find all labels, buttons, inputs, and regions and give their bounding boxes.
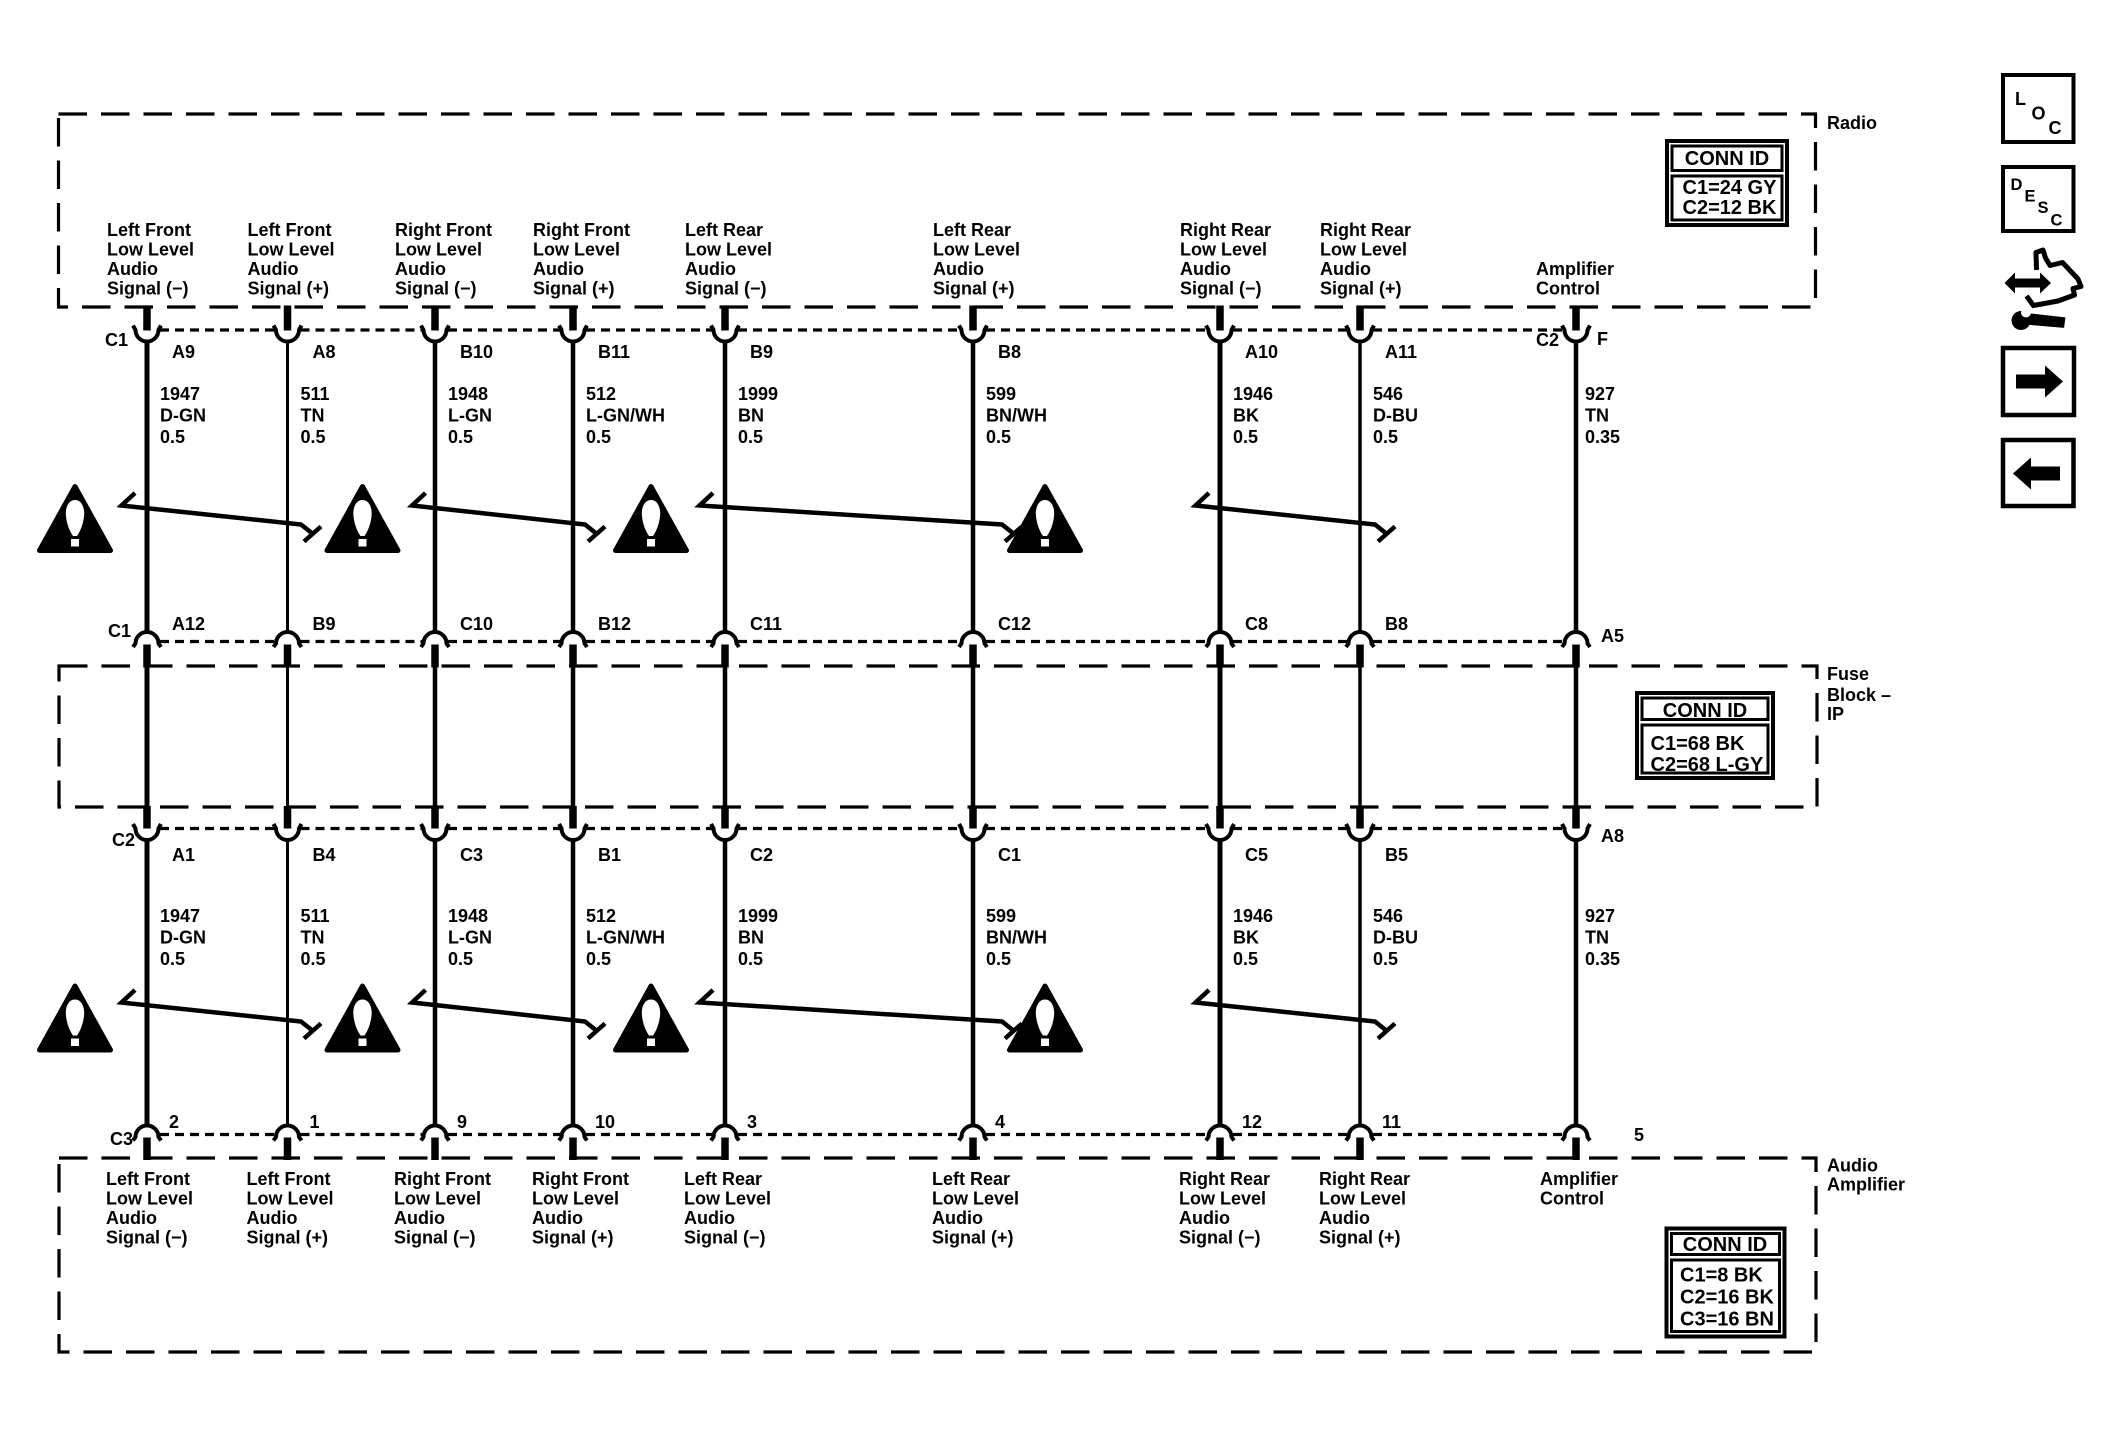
- svg-text:B4: B4: [313, 845, 336, 865]
- svg-text:3: 3: [747, 1112, 757, 1132]
- svg-text:E: E: [2025, 188, 2036, 206]
- svg-text:C1: C1: [105, 330, 128, 350]
- svg-text:C2: C2: [112, 830, 135, 850]
- svg-text:CONN ID: CONN ID: [1683, 1234, 1767, 1256]
- svg-text:C2: C2: [750, 845, 773, 865]
- svg-text:B8: B8: [998, 342, 1021, 362]
- svg-text:Left RearLow LevelAudioSignal: Left RearLow LevelAudioSignal (+): [933, 220, 1020, 299]
- svg-text:C2: C2: [1536, 330, 1559, 350]
- svg-text:CONN ID: CONN ID: [1663, 700, 1747, 722]
- svg-text:Radio: Radio: [1827, 113, 1877, 133]
- svg-text:4: 4: [995, 1112, 1005, 1132]
- svg-text:A8: A8: [313, 342, 336, 362]
- svg-text:C1=24 GY: C1=24 GY: [1683, 177, 1778, 199]
- svg-text:B9: B9: [313, 614, 336, 634]
- svg-text:Right RearLow LevelAudioSignal: Right RearLow LevelAudioSignal (+): [1319, 1169, 1410, 1248]
- svg-text:CONN ID: CONN ID: [1685, 148, 1769, 170]
- svg-text:B8: B8: [1385, 614, 1408, 634]
- svg-text:C: C: [2051, 212, 2063, 230]
- svg-text:C1: C1: [108, 621, 131, 641]
- svg-text:C10: C10: [460, 614, 493, 634]
- svg-text:C12: C12: [998, 614, 1031, 634]
- svg-text:Right RearLow LevelAudioSignal: Right RearLow LevelAudioSignal (−): [1179, 1169, 1270, 1248]
- svg-text:C2=12 BK: C2=12 BK: [1683, 197, 1777, 219]
- svg-text:Left FrontLow LevelAudioSignal: Left FrontLow LevelAudioSignal (+): [248, 220, 335, 299]
- svg-text:Left RearLow LevelAudioSignal: Left RearLow LevelAudioSignal (−): [685, 220, 772, 299]
- svg-text:5: 5: [1634, 1125, 1644, 1145]
- svg-text:Left FrontLow LevelAudioSignal: Left FrontLow LevelAudioSignal (−): [107, 220, 194, 299]
- svg-text:2: 2: [169, 1112, 179, 1132]
- svg-text:9: 9: [457, 1112, 467, 1132]
- svg-text:A11: A11: [1385, 342, 1417, 362]
- svg-text:C1=8 BK: C1=8 BK: [1680, 1265, 1763, 1287]
- svg-text:B9: B9: [750, 342, 773, 362]
- svg-text:A9: A9: [172, 342, 195, 362]
- svg-text:C2=68 L-GY: C2=68 L-GY: [1651, 754, 1764, 776]
- svg-text:B11: B11: [598, 342, 630, 362]
- svg-text:L: L: [2015, 89, 2026, 109]
- svg-text:C3: C3: [110, 1129, 133, 1149]
- svg-text:C8: C8: [1245, 614, 1268, 634]
- svg-text:B10: B10: [460, 342, 493, 362]
- svg-text:Right RearLow LevelAudioSignal: Right RearLow LevelAudioSignal (+): [1320, 220, 1411, 299]
- svg-text:A1: A1: [172, 845, 195, 865]
- svg-text:Left FrontLow LevelAudioSignal: Left FrontLow LevelAudioSignal (−): [106, 1169, 193, 1248]
- svg-text:C5: C5: [1245, 845, 1268, 865]
- svg-text:12: 12: [1242, 1112, 1262, 1132]
- svg-text:C2=16 BK: C2=16 BK: [1680, 1287, 1774, 1309]
- svg-text:B1: B1: [598, 845, 621, 865]
- svg-text:A8: A8: [1601, 826, 1624, 846]
- svg-text:10: 10: [595, 1112, 615, 1132]
- svg-text:11: 11: [1382, 1112, 1401, 1132]
- svg-text:A12: A12: [172, 614, 205, 634]
- svg-text:C1: C1: [998, 845, 1021, 865]
- svg-text:F: F: [1597, 329, 1608, 349]
- svg-text:C: C: [2049, 118, 2062, 138]
- svg-text:A5: A5: [1601, 626, 1624, 646]
- svg-text:S: S: [2038, 199, 2049, 217]
- svg-text:A10: A10: [1245, 342, 1278, 362]
- svg-text:B12: B12: [598, 614, 631, 634]
- svg-text:Left FrontLow LevelAudioSignal: Left FrontLow LevelAudioSignal (+): [247, 1169, 334, 1248]
- svg-text:C3=16 BN: C3=16 BN: [1680, 1309, 1774, 1331]
- svg-text:C1=68 BK: C1=68 BK: [1651, 733, 1745, 755]
- svg-text:D: D: [2011, 176, 2023, 194]
- svg-text:1: 1: [310, 1112, 320, 1132]
- svg-text:C3: C3: [460, 845, 483, 865]
- svg-text:C11: C11: [750, 614, 782, 634]
- svg-text:B5: B5: [1385, 845, 1408, 865]
- svg-text:Left RearLow LevelAudioSignal: Left RearLow LevelAudioSignal (−): [684, 1169, 771, 1248]
- svg-text:O: O: [2032, 104, 2046, 124]
- svg-text:Left RearLow LevelAudioSignal: Left RearLow LevelAudioSignal (+): [932, 1169, 1019, 1248]
- svg-text:Right RearLow LevelAudioSignal: Right RearLow LevelAudioSignal (−): [1180, 220, 1271, 299]
